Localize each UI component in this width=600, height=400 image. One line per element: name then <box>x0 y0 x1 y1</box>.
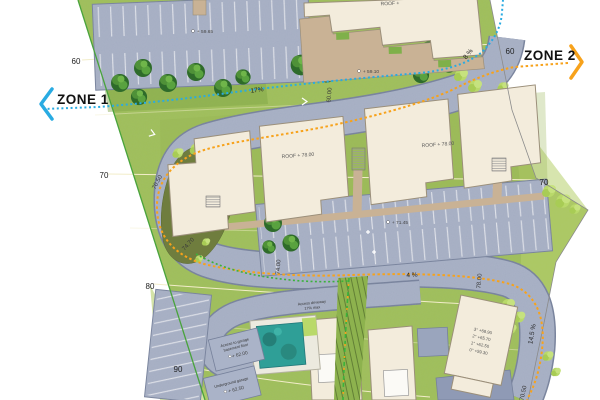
road-elev-7400: 74.00 <box>275 259 282 275</box>
parking-lot-southwest <box>145 289 212 400</box>
utility-pad <box>417 327 448 357</box>
stair-core <box>352 148 365 170</box>
terrace-pad <box>383 369 408 396</box>
spot-5965: + 59.65 <box>197 29 213 35</box>
grade-4: 4 % <box>406 272 418 280</box>
contour-label-60-left: 60 <box>72 57 81 66</box>
contour-label-70-right: 70 <box>540 178 549 187</box>
tree-icon <box>159 74 177 92</box>
contour-label-70-left: 70 <box>100 171 109 180</box>
terrace-planter <box>336 32 349 39</box>
stair-core <box>206 196 220 207</box>
terrace-planter <box>389 47 402 54</box>
zone2-label: ZONE 2 <box>524 48 576 63</box>
spot-marker-icon <box>387 221 390 224</box>
building-top <box>299 0 485 83</box>
tree-icon <box>282 234 299 251</box>
walkway-stub <box>357 170 358 214</box>
tree-icon <box>262 240 276 254</box>
terrace-planter <box>438 60 451 67</box>
site-plan-drawing: 3° +68.90 2° +65.70 1° +62.50 0° +59.30 … <box>0 0 600 400</box>
tree-icon <box>235 69 250 84</box>
zone1-arrow-icon <box>41 89 52 119</box>
tree-icon <box>111 74 129 92</box>
zone1-label: ZONE 1 <box>57 92 109 107</box>
zone2-callout: 60 ZONE 2 <box>524 46 582 78</box>
contour-label-80: 80 <box>146 282 155 291</box>
parking-ramp <box>193 0 206 15</box>
roof-label-top: ROOF + <box>380 1 399 8</box>
contour-label-90: 90 <box>174 365 183 374</box>
spot-7145: + 71.45 <box>392 220 408 226</box>
spot-marker-icon <box>192 30 195 33</box>
pool-lawn <box>302 317 318 336</box>
tree-icon <box>187 63 205 81</box>
spot-marker-icon <box>358 70 361 73</box>
spot-5910: + 59.10 <box>363 69 379 75</box>
stair-core <box>492 158 506 171</box>
contour-label-60-right: 60 <box>506 47 515 56</box>
tree-icon <box>134 59 152 77</box>
site-plan-canvas: 3° +68.90 2° +65.70 1° +62.50 0° +59.30 … <box>0 0 600 400</box>
